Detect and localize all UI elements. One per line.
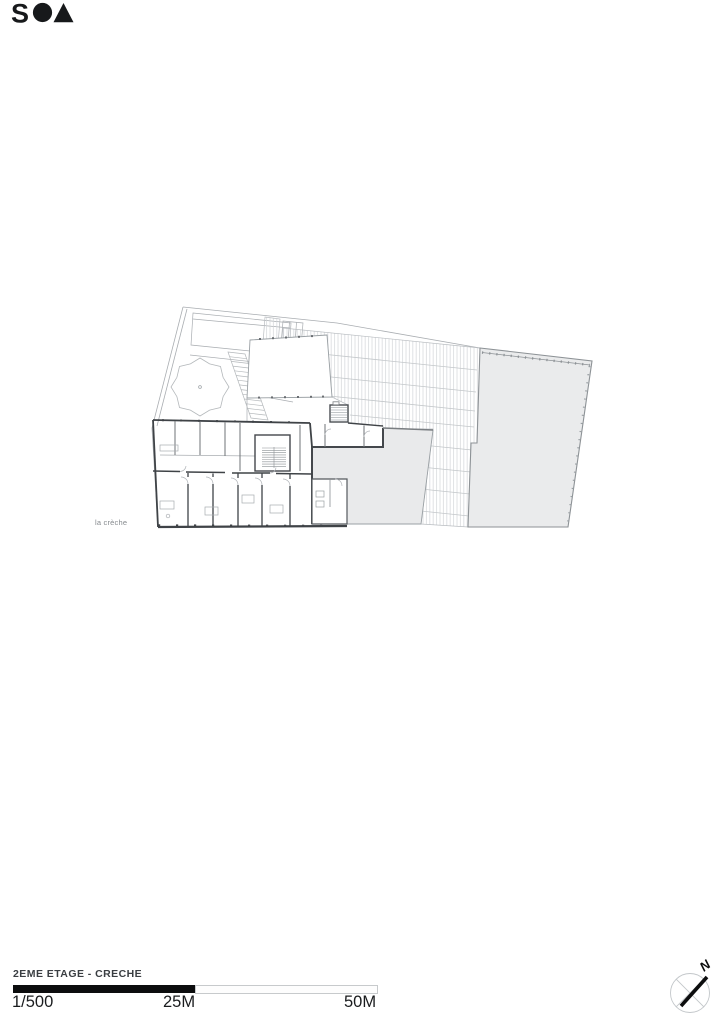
scale-bar-filled-segment (13, 985, 195, 993)
north-arrow-graphic: N (660, 950, 720, 1024)
roof-block-right (468, 348, 592, 527)
scale-ratio-label: 1/500 (12, 993, 53, 1012)
floor-plan (150, 295, 600, 535)
scale-bar (13, 985, 377, 993)
soa-logo-graphic: S (6, 0, 76, 26)
tree (171, 358, 229, 416)
logo-circle-icon (33, 3, 52, 22)
drawing-sheet: S (0, 0, 720, 1024)
stair-core (255, 435, 290, 471)
logo-letter-s: S (11, 0, 29, 26)
soa-logo: S (6, 0, 76, 26)
scale-50m-label: 50M (344, 993, 376, 1012)
plan-label-la-creche: la crèche (95, 518, 127, 527)
logo-triangle-icon (54, 3, 74, 22)
terrace-stair-box (330, 402, 348, 422)
scale-25m-label: 25M (163, 993, 195, 1012)
north-arrow: N (660, 950, 720, 1024)
central-hall (247, 335, 332, 399)
north-letter: N (697, 956, 714, 974)
drawing-title: 2EME ETAGE - CRECHE (13, 968, 142, 980)
floor-plan-drawing (150, 295, 600, 535)
north-needle (681, 977, 707, 1006)
sanitary-room (312, 479, 347, 524)
